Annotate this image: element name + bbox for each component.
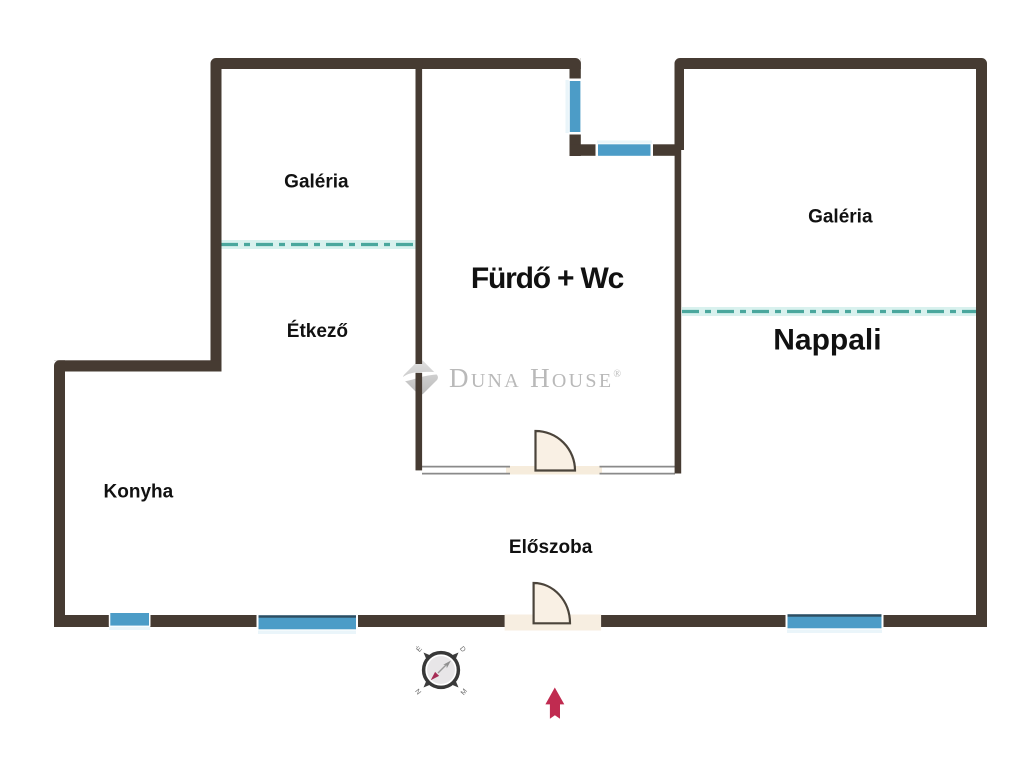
- svg-text:Fürdő + Wc: Fürdő + Wc: [471, 262, 624, 295]
- svg-text:Előszoba: Előszoba: [509, 537, 593, 558]
- svg-text:Galéria: Galéria: [284, 172, 349, 193]
- svg-text:Konyha: Konyha: [104, 481, 174, 502]
- svg-text:Nappali: Nappali: [773, 324, 881, 357]
- svg-text:Galéria: Galéria: [808, 207, 873, 228]
- svg-text:Étkező: Étkező: [287, 320, 348, 342]
